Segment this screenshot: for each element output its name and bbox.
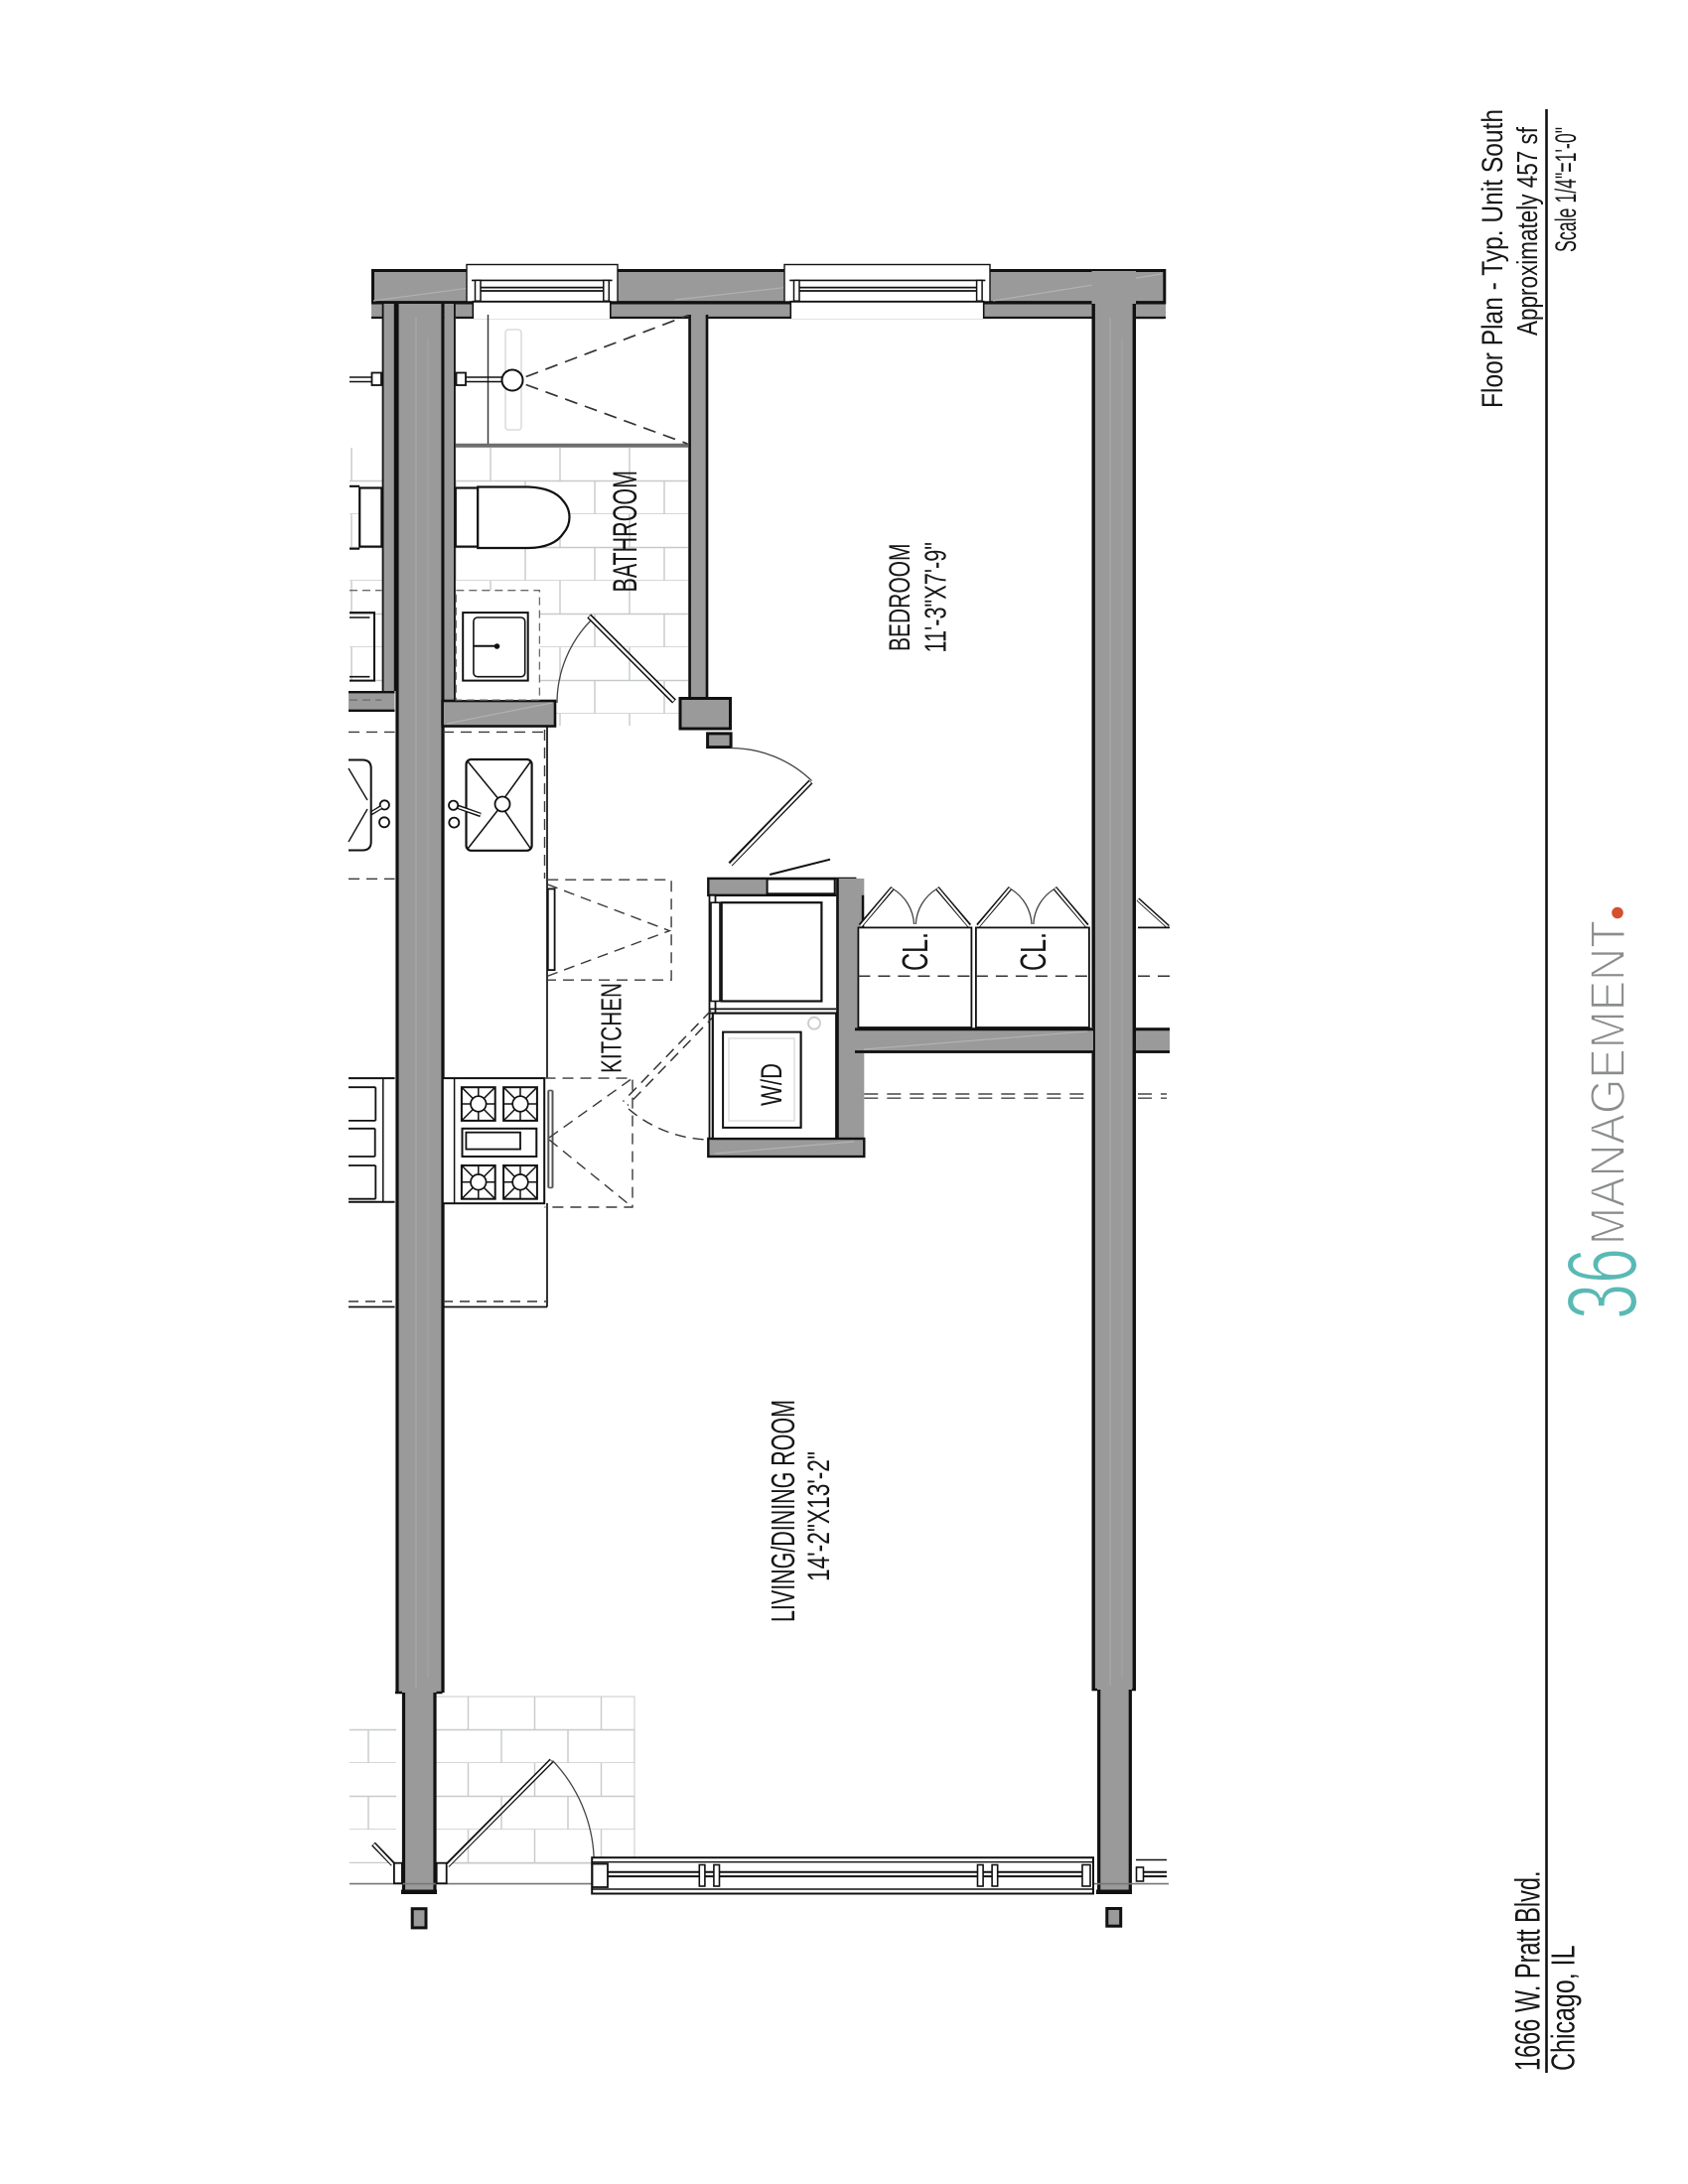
svg-text:CL.: CL. bbox=[1013, 932, 1054, 971]
svg-text:36: 36 bbox=[1547, 1248, 1658, 1319]
svg-text:11'-3"X7'-9": 11'-3"X7'-9" bbox=[918, 542, 953, 653]
svg-text:Chicago, IL: Chicago, IL bbox=[1544, 1946, 1581, 2072]
svg-text:Scale 1/4"=1'-0": Scale 1/4"=1'-0" bbox=[1550, 127, 1583, 252]
svg-text:14'-2"X13'-2": 14'-2"X13'-2" bbox=[800, 1451, 836, 1581]
svg-text:Floor Plan - Typ. Unit South: Floor Plan - Typ. Unit South bbox=[1477, 109, 1509, 408]
svg-text:BEDROOM: BEDROOM bbox=[884, 544, 916, 652]
svg-text:MANAGEMENT: MANAGEMENT bbox=[1582, 920, 1635, 1245]
svg-text:LIVING/DINING ROOM: LIVING/DINING ROOM bbox=[765, 1400, 801, 1622]
svg-text:1666 W. Pratt Blvd.: 1666 W. Pratt Blvd. bbox=[1509, 1871, 1548, 2072]
svg-text:Approximately 457 sf: Approximately 457 sf bbox=[1512, 126, 1544, 336]
svg-text:BATHROOM: BATHROOM bbox=[607, 471, 644, 593]
svg-text:CL.: CL. bbox=[895, 932, 935, 971]
svg-text:W/D: W/D bbox=[756, 1063, 788, 1106]
svg-text:KITCHEN: KITCHEN bbox=[597, 983, 629, 1073]
